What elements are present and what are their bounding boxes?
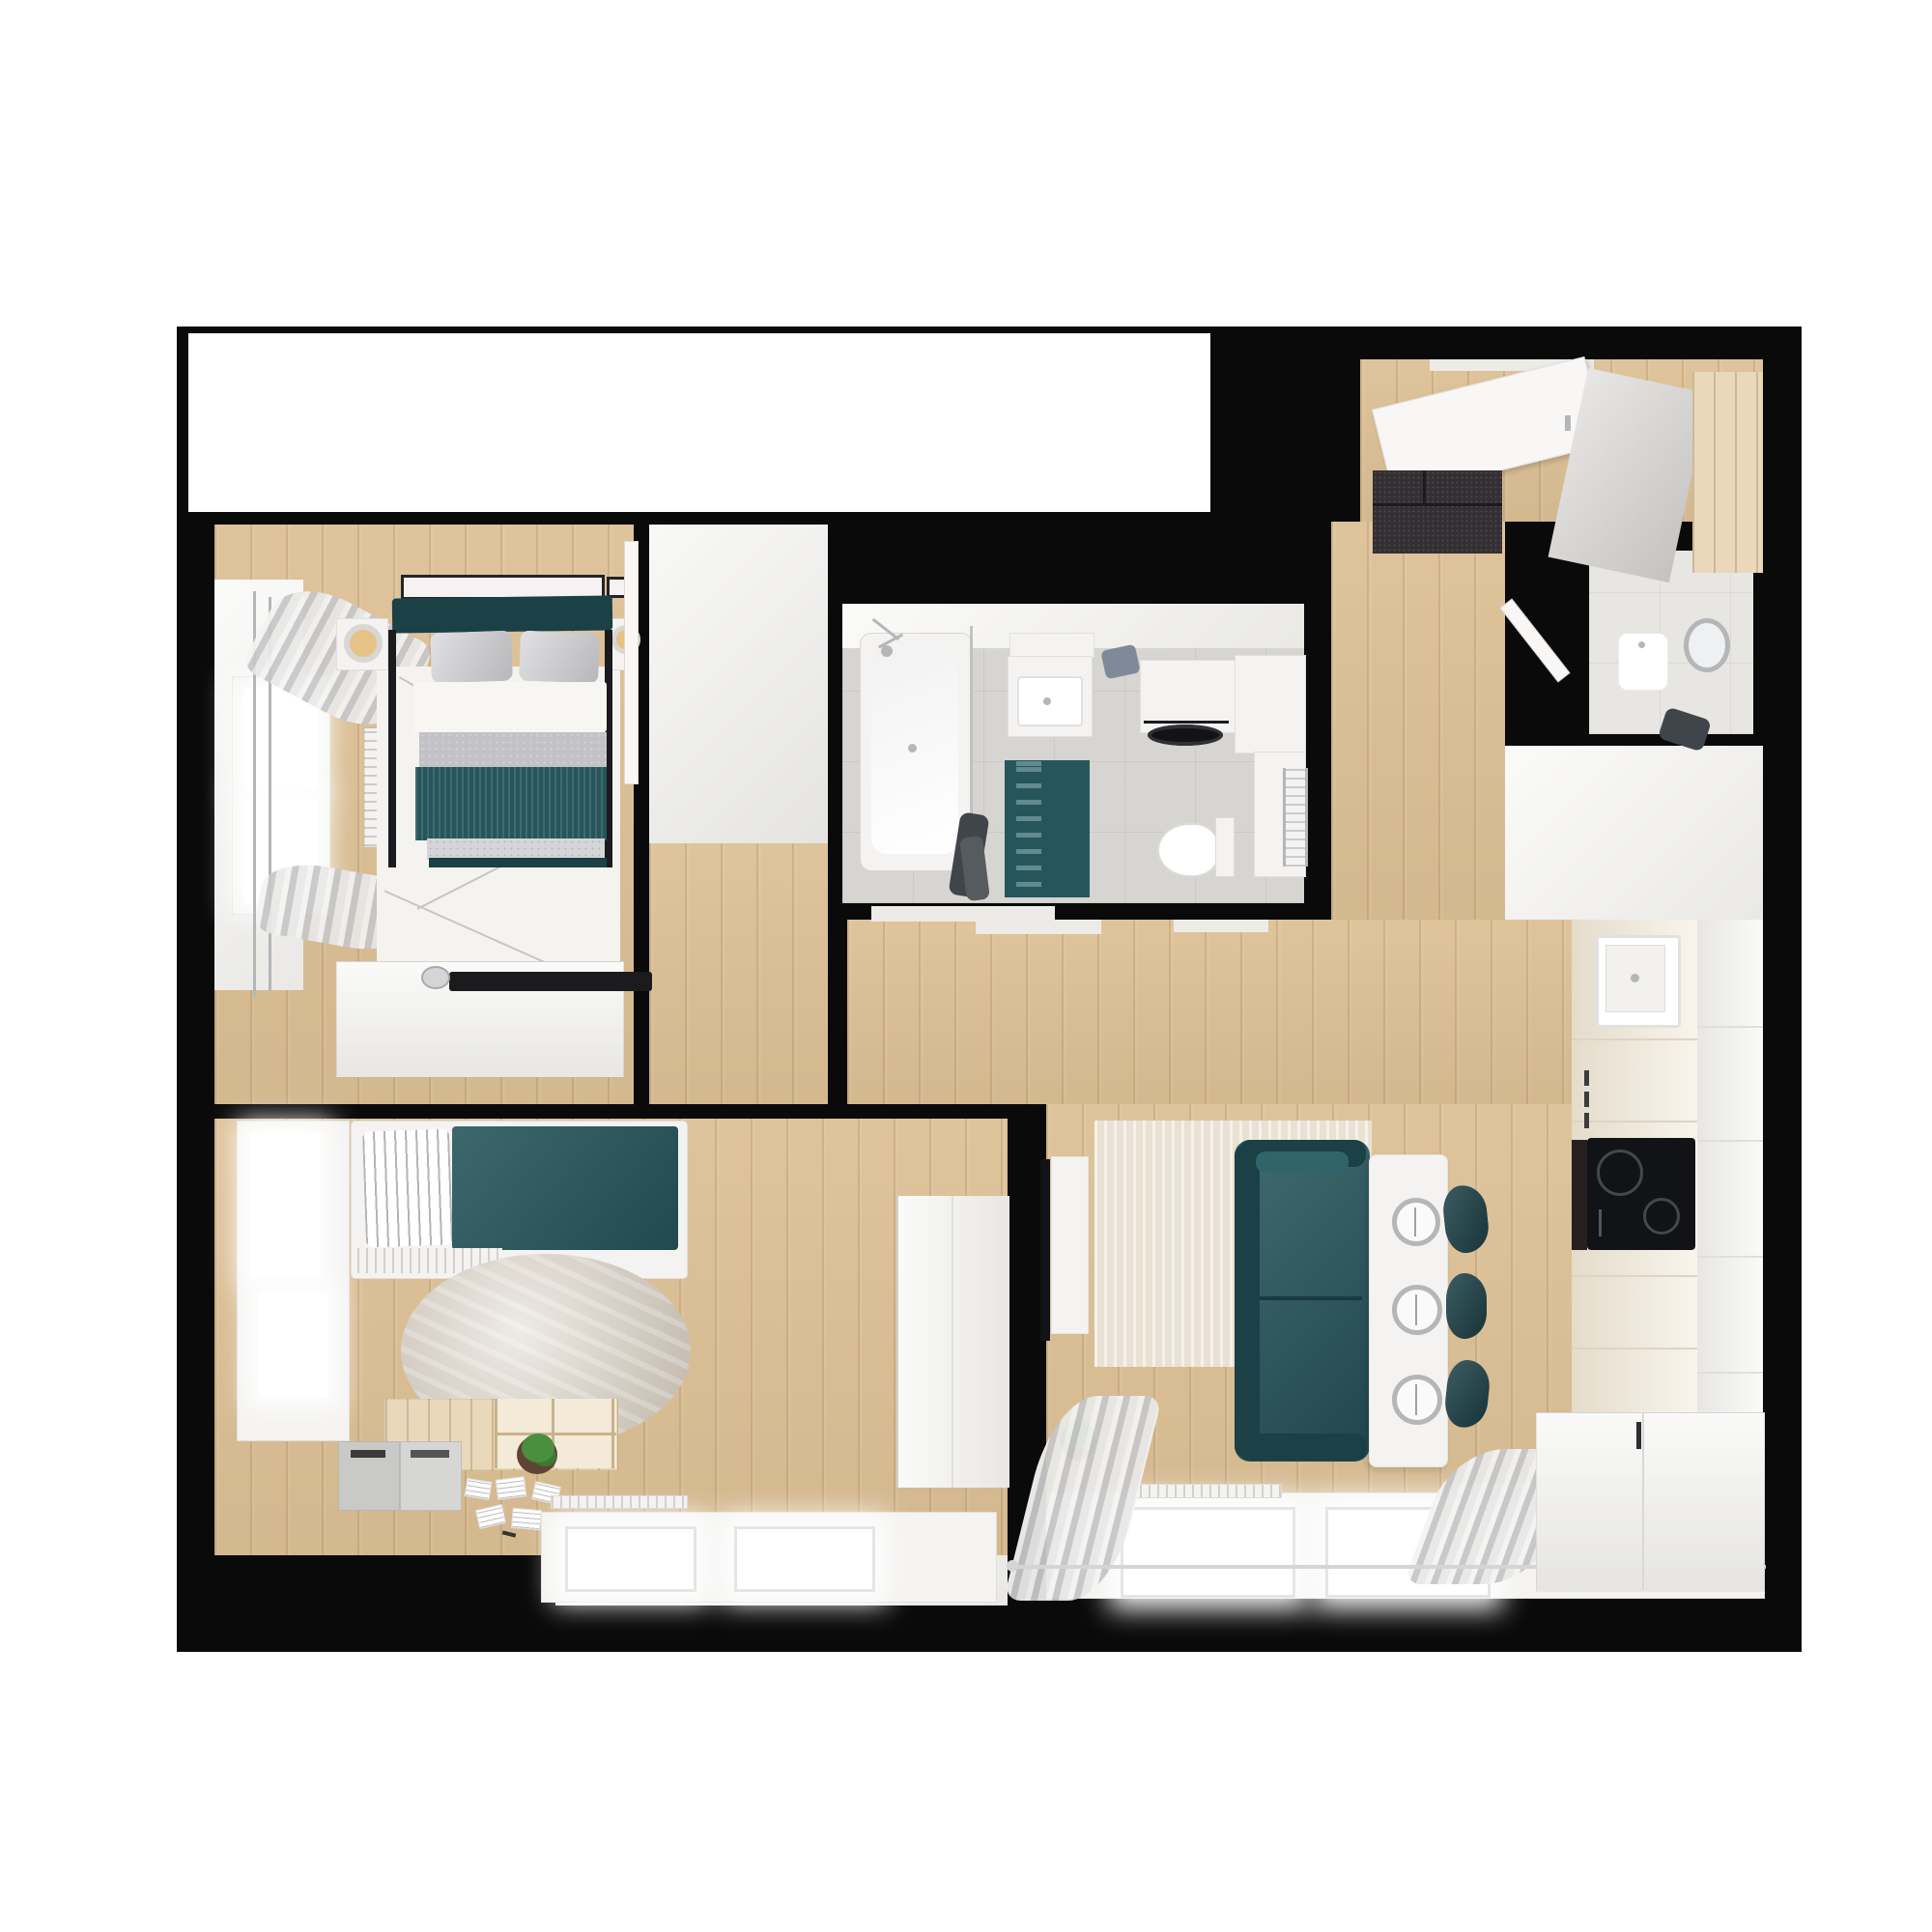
kitchen-bottom-cabinets xyxy=(1536,1412,1765,1592)
doormat-seam-v xyxy=(1423,470,1426,503)
living-window-pane-1 xyxy=(1121,1507,1295,1598)
tv-screen xyxy=(1040,1159,1050,1341)
hob-ring-large xyxy=(1597,1150,1643,1196)
kids-paper-5 xyxy=(511,1508,542,1531)
wardrobe-wood-body xyxy=(1692,372,1763,573)
hall-door-threshold-a xyxy=(976,920,1101,934)
hall-door-threshold-b xyxy=(1174,920,1268,932)
kitchen-entry-zone xyxy=(1505,746,1763,920)
master-quilt-grey-foot xyxy=(427,838,605,860)
dresser-black-tray xyxy=(449,972,652,991)
place-setting-3 xyxy=(1392,1375,1442,1425)
oven-front xyxy=(1572,1140,1587,1250)
master-bed-rail-left xyxy=(388,630,396,867)
kids-window-left-pane-1 xyxy=(249,1132,321,1277)
master-pillow-left xyxy=(430,631,513,684)
master-door-leaf xyxy=(624,541,639,784)
cabinet-handle-1 xyxy=(1584,1070,1589,1086)
counter-seam-2 xyxy=(1572,1121,1697,1122)
place-setting-2 xyxy=(1392,1285,1442,1335)
kitchen-faucet xyxy=(1631,974,1639,982)
hob-ring-small xyxy=(1643,1198,1680,1235)
kids-wardrobe-seam xyxy=(952,1196,953,1488)
toilet-bowl xyxy=(1157,823,1221,877)
bathtub-drain xyxy=(908,744,917,753)
table-lamp-left xyxy=(344,624,383,663)
tall-cab-seam-2 xyxy=(1697,1140,1763,1142)
room-hall-floor xyxy=(847,920,1572,1104)
tv-cabinet xyxy=(1051,1156,1089,1334)
kids-pillow-striped xyxy=(362,1128,453,1247)
tall-cab-seam-4 xyxy=(1697,1372,1763,1374)
room-unfinished xyxy=(188,333,1210,512)
entry-doormat xyxy=(1373,470,1502,554)
master-quilt-grey xyxy=(419,732,607,769)
bottom-cab-handle xyxy=(1636,1422,1641,1449)
wc-mirror xyxy=(1684,618,1730,672)
toilet-tank xyxy=(1215,817,1235,877)
bin-contents-1 xyxy=(351,1450,385,1458)
kids-storage-bin-2 xyxy=(400,1441,462,1511)
living-radiator-1 xyxy=(1130,1484,1282,1498)
towel-radiator xyxy=(1283,768,1308,867)
master-bed-headboard xyxy=(392,595,612,633)
cabinet-handle-3 xyxy=(1584,1113,1589,1128)
washing-machine-drum xyxy=(1148,724,1223,746)
master-duvet-white xyxy=(413,682,607,732)
hob-controls xyxy=(1599,1209,1602,1236)
sofa-seat-split xyxy=(1260,1296,1362,1300)
room-vestibule-floor-wood xyxy=(649,843,828,1104)
vanity-faucet xyxy=(1043,697,1051,705)
kids-window-bottom-pane-2 xyxy=(734,1526,875,1592)
kids-blanket-teal xyxy=(452,1126,678,1250)
counter-seam-1 xyxy=(1572,1038,1697,1040)
dresser-decor-roll xyxy=(421,966,450,989)
curtain-rod-finial xyxy=(1007,1560,1018,1572)
master-runner-teal xyxy=(415,767,607,840)
shower-head xyxy=(881,645,893,657)
floor-plan-canvas xyxy=(0,0,1932,1932)
vanity-shelf xyxy=(1009,633,1094,658)
master-pillow-right xyxy=(519,631,600,684)
bin-contents-2 xyxy=(411,1450,449,1458)
master-footboard xyxy=(429,858,607,867)
bar-stool-2 xyxy=(1446,1273,1487,1339)
doormat-seam-h xyxy=(1373,503,1502,506)
bath-mat-teal xyxy=(1005,760,1090,897)
room-vestibule-floor-white xyxy=(649,525,828,843)
tall-cab-seam-3 xyxy=(1697,1256,1763,1258)
counter-seam-3 xyxy=(1572,1275,1697,1277)
entry-door-handle xyxy=(1565,415,1571,431)
kids-storage-bin-1 xyxy=(338,1441,400,1511)
sofa-arm-bottom xyxy=(1238,1434,1366,1461)
master-rug-line-3 xyxy=(384,890,553,966)
room-corridor-floor xyxy=(1331,522,1505,920)
wc-faucet xyxy=(1638,641,1645,648)
kids-radiator xyxy=(551,1495,688,1509)
induction-hob xyxy=(1587,1138,1695,1250)
kids-plant-leaves xyxy=(522,1434,554,1463)
kids-paper-1 xyxy=(465,1478,493,1500)
kids-window-left-pane-2 xyxy=(259,1293,328,1397)
washing-machine-trim xyxy=(1144,721,1229,724)
sofa-headrest-cushion xyxy=(1256,1151,1349,1173)
kitchen-tall-cabinets xyxy=(1697,920,1763,1414)
bottom-cab-seam xyxy=(1642,1412,1644,1590)
kids-paper-2 xyxy=(496,1476,526,1499)
kids-window-bottom-pane-1 xyxy=(565,1526,696,1592)
sofa-back xyxy=(1235,1144,1260,1458)
place-setting-1 xyxy=(1392,1198,1440,1246)
counter-seam-4 xyxy=(1572,1348,1697,1350)
cabinet-handle-2 xyxy=(1584,1092,1589,1107)
bathroom-cabinet-top-right xyxy=(1235,655,1306,753)
tall-cab-seam-1 xyxy=(1697,1026,1763,1028)
